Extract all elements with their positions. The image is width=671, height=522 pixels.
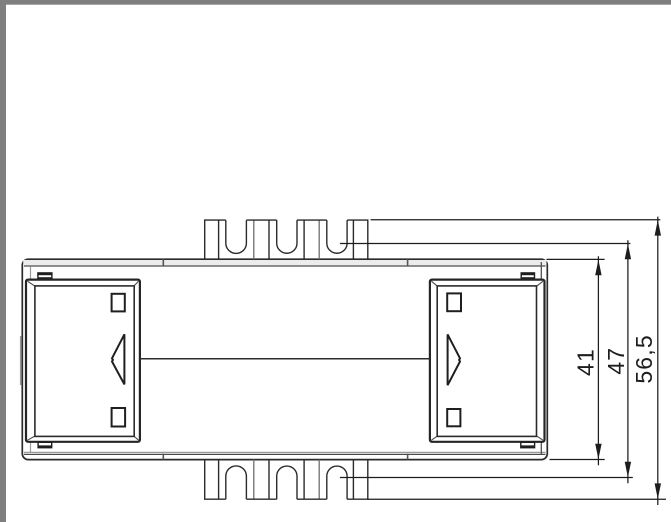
svg-text:41: 41 [573, 348, 599, 376]
svg-text:47: 47 [603, 347, 629, 375]
svg-text:56,5: 56,5 [631, 334, 657, 384]
